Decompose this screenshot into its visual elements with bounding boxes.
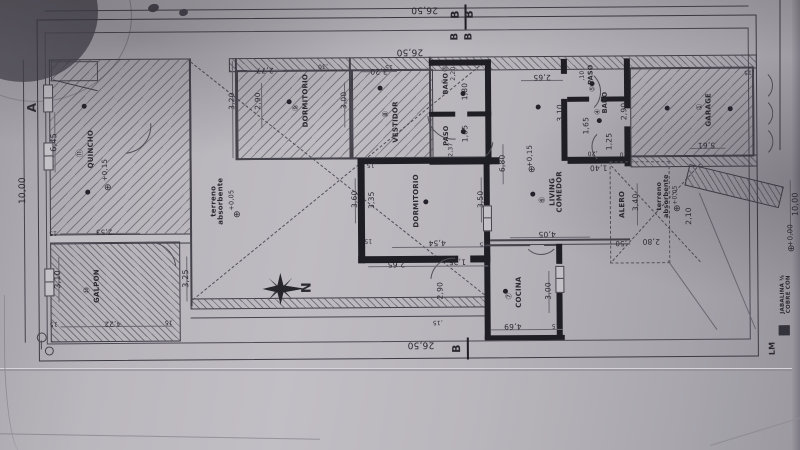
plan-drawing: 26,50BBBB26,5026,50BA10,006,45⑪QUINCHO+0… xyxy=(0,0,800,450)
level-mark-icon: ⊕ xyxy=(787,244,795,254)
level-marks-layer: ⊕⊕⊕⊕⊕ xyxy=(0,0,800,450)
level-mark-icon: ⊕ xyxy=(104,183,112,193)
floor-plan-photo: 26,50BBBB26,5026,50BA10,006,45⑪QUINCHO+0… xyxy=(0,0,800,450)
level-mark-icon: ⊕ xyxy=(673,204,681,214)
level-mark-icon: ⊕ xyxy=(528,165,536,175)
level-mark-icon: ⊕ xyxy=(233,210,241,220)
